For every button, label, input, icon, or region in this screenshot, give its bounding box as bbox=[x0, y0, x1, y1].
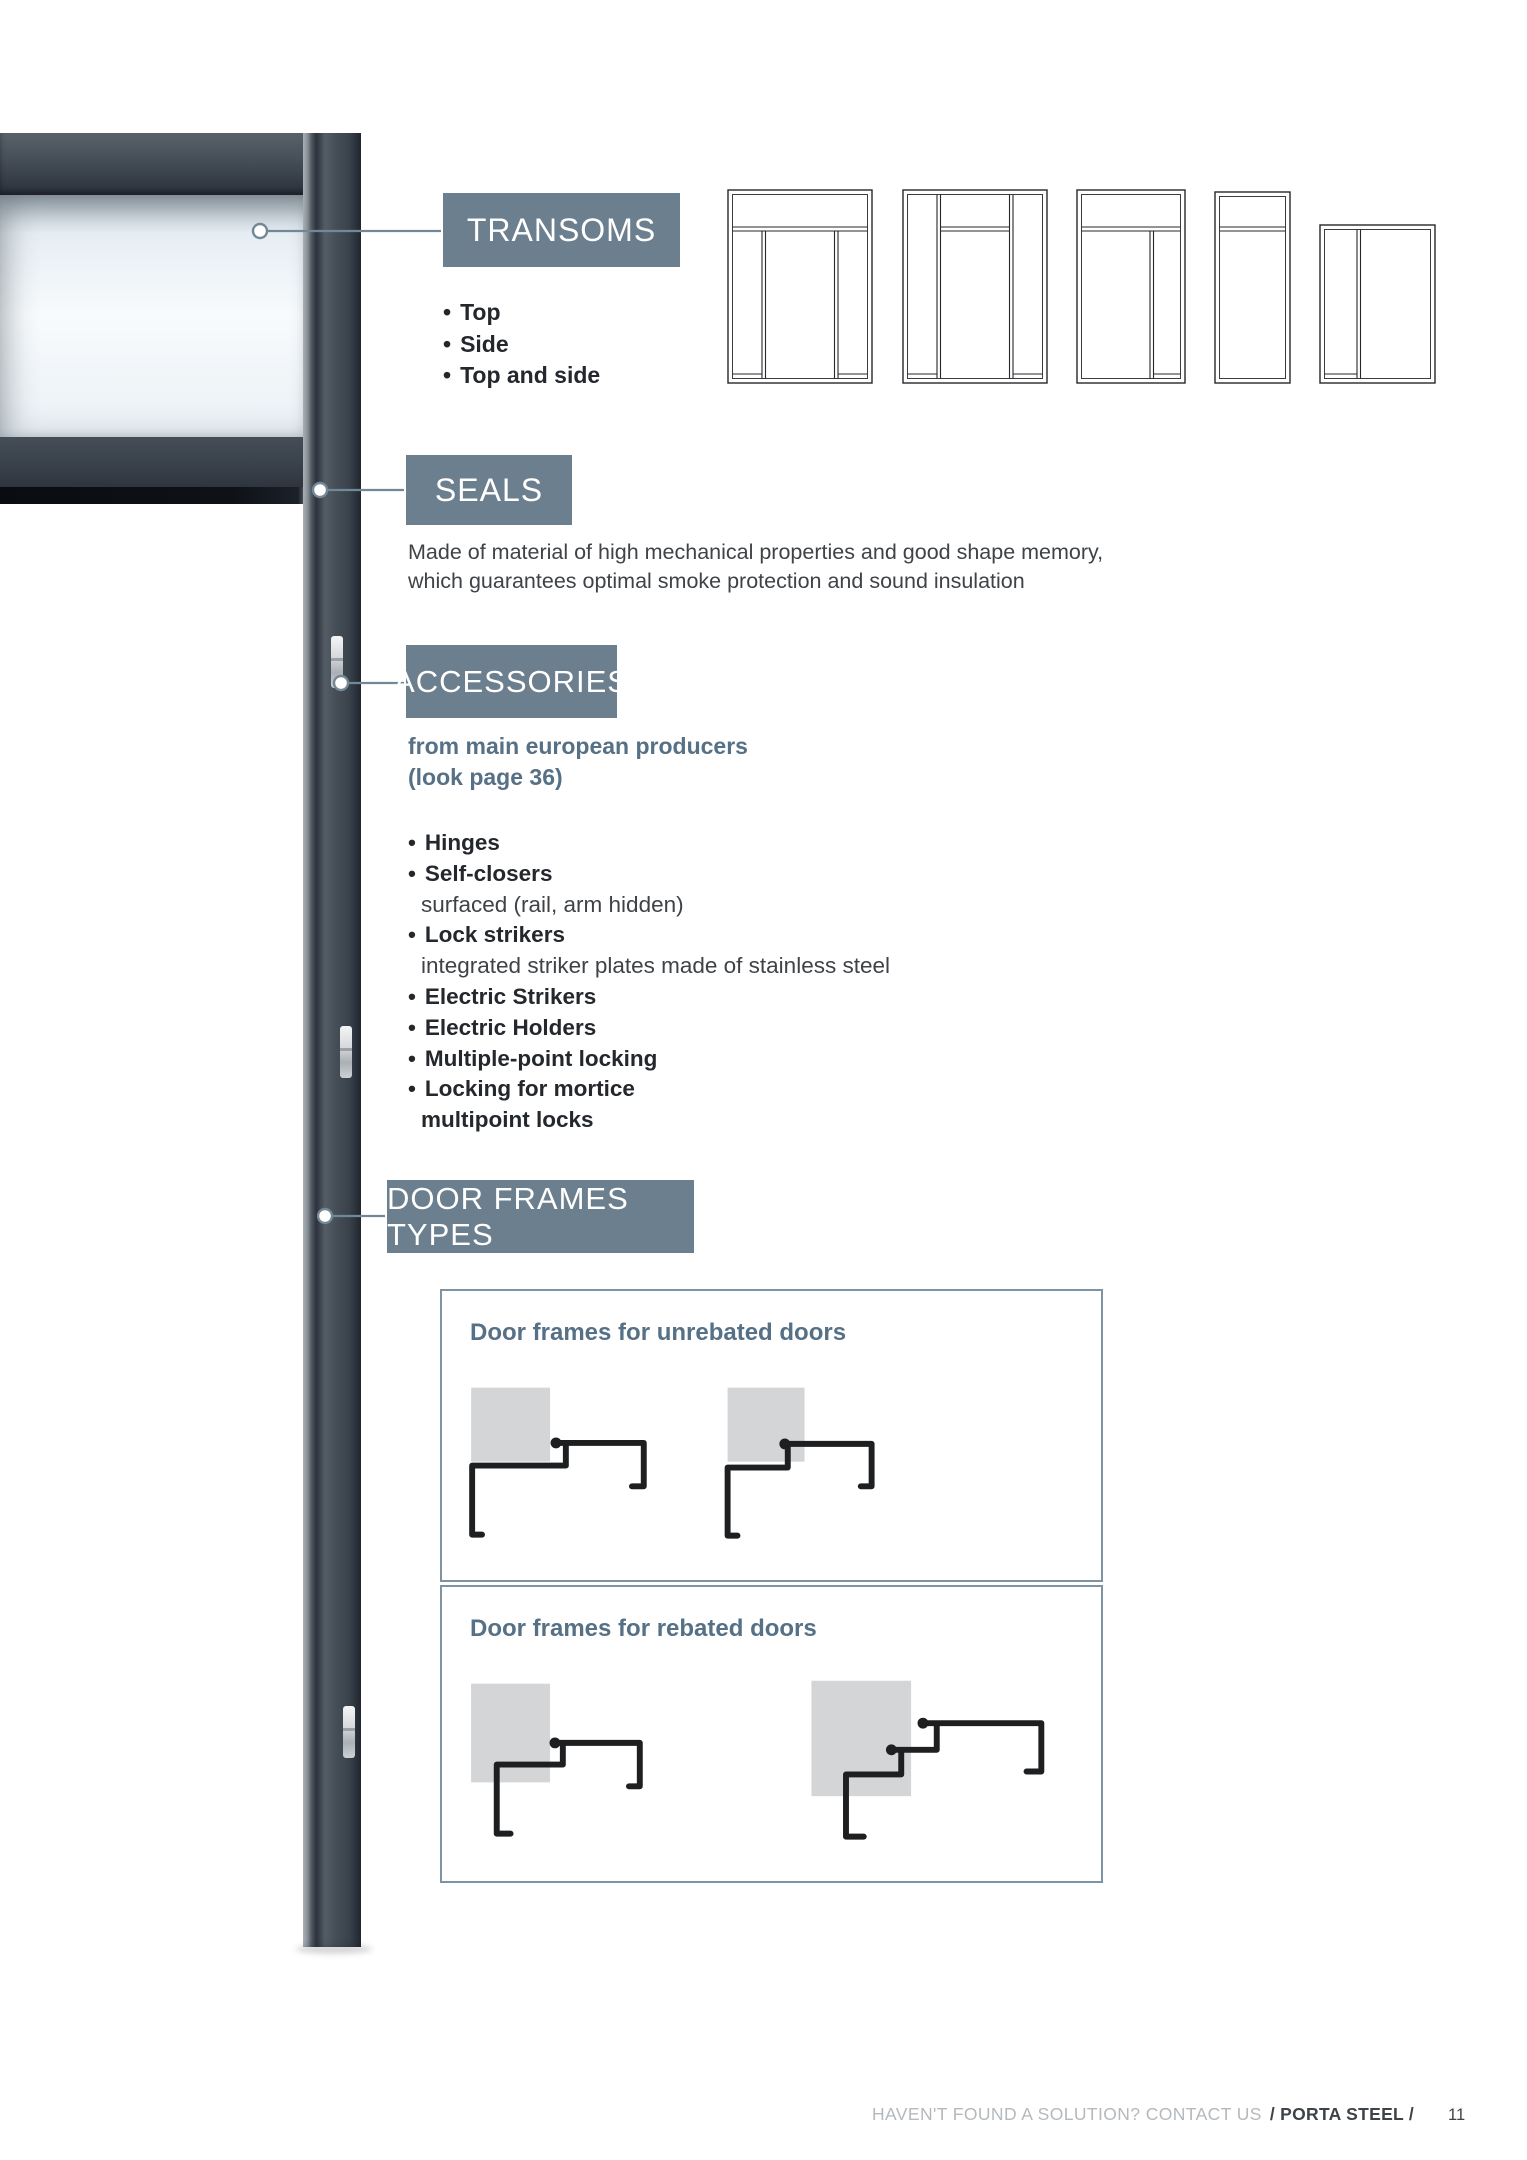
list-item: • Lock strikers bbox=[408, 920, 890, 951]
rebated-doors-box: Door frames for rebated doors bbox=[440, 1585, 1103, 1883]
profile-rebated-left bbox=[471, 1684, 640, 1834]
door-frames-marker-circle bbox=[318, 1209, 332, 1223]
unrebated-doors-box: Door frames for unrebated doors bbox=[440, 1289, 1103, 1582]
transoms-heading-label: TRANSOMS bbox=[467, 212, 656, 249]
list-item-note: integrated striker plates made of stainl… bbox=[408, 951, 890, 982]
bullet-icon: • bbox=[443, 360, 451, 392]
list-item: • Hinges bbox=[408, 828, 890, 859]
profile-rebated-right bbox=[811, 1681, 1041, 1837]
page-footer: HAVEN'T FOUND A SOLUTION? CONTACT US / P… bbox=[872, 2104, 1465, 2125]
transoms-bullet-list: • Top • Side • Top and side bbox=[443, 297, 600, 392]
list-item: • Multiple-point locking bbox=[408, 1044, 890, 1075]
list-item-note: surfaced (rail, arm hidden) bbox=[408, 890, 890, 921]
bullet-icon: • bbox=[408, 1074, 416, 1105]
bullet-icon: • bbox=[408, 920, 416, 951]
bullet-icon: • bbox=[443, 329, 451, 361]
door-frames-heading: DOOR FRAMES TYPES bbox=[387, 1180, 694, 1253]
transom-diagram-sides-full-top-middle bbox=[903, 190, 1047, 383]
accessories-source: from main european producers (look page … bbox=[408, 731, 748, 793]
bullet-icon: • bbox=[408, 982, 416, 1013]
list-item: • Top and side bbox=[443, 360, 600, 392]
accessories-marker-circle bbox=[334, 676, 348, 690]
list-item: • Electric Holders bbox=[408, 1013, 890, 1044]
transoms-heading: TRANSOMS bbox=[443, 193, 680, 267]
footer-page-number: 11 bbox=[1448, 2106, 1465, 2125]
list-item: • Locking for mortice bbox=[408, 1074, 890, 1105]
list-item: • Top bbox=[443, 297, 600, 329]
bullet-icon: • bbox=[408, 1044, 416, 1075]
list-item: • Electric Strikers bbox=[408, 982, 890, 1013]
bullet-icon: • bbox=[408, 859, 416, 890]
list-item-continuation: multipoint locks bbox=[408, 1105, 890, 1136]
transom-diagrams bbox=[700, 185, 1460, 390]
bullet-icon: • bbox=[408, 828, 416, 859]
seals-marker-circle bbox=[313, 483, 327, 497]
footer-contact-text: HAVEN'T FOUND A SOLUTION? CONTACT US bbox=[872, 2104, 1262, 2125]
seals-heading: SEALS bbox=[406, 455, 572, 525]
seals-heading-label: SEALS bbox=[435, 472, 543, 509]
bullet-icon: • bbox=[443, 297, 451, 329]
seals-description: Made of material of high mechanical prop… bbox=[408, 538, 1168, 596]
transoms-marker-circle bbox=[253, 224, 267, 238]
accessories-list: • Hinges • Self-closers surfaced (rail, … bbox=[408, 828, 890, 1136]
accessories-heading: ACCESSORIES bbox=[406, 645, 617, 718]
bullet-icon: • bbox=[408, 1013, 416, 1044]
list-item: • Side bbox=[443, 329, 600, 361]
transom-diagram-top-only bbox=[1215, 192, 1290, 383]
transom-diagram-top-and-one-side bbox=[1077, 190, 1185, 383]
profile-unrebated-right bbox=[728, 1388, 872, 1536]
list-item: • Self-closers bbox=[408, 859, 890, 890]
transom-diagram-side-only bbox=[1320, 225, 1435, 383]
door-frames-heading-label: DOOR FRAMES TYPES bbox=[387, 1181, 694, 1253]
transom-diagram-top-and-both-sides bbox=[728, 190, 872, 383]
accessories-heading-label: ACCESSORIES bbox=[394, 664, 629, 700]
profile-unrebated-left bbox=[471, 1388, 644, 1535]
rebated-doors-title: Door frames for rebated doors bbox=[470, 1615, 817, 1643]
footer-brand: / PORTA STEEL / bbox=[1270, 2104, 1414, 2125]
unrebated-doors-title: Door frames for unrebated doors bbox=[470, 1319, 846, 1347]
